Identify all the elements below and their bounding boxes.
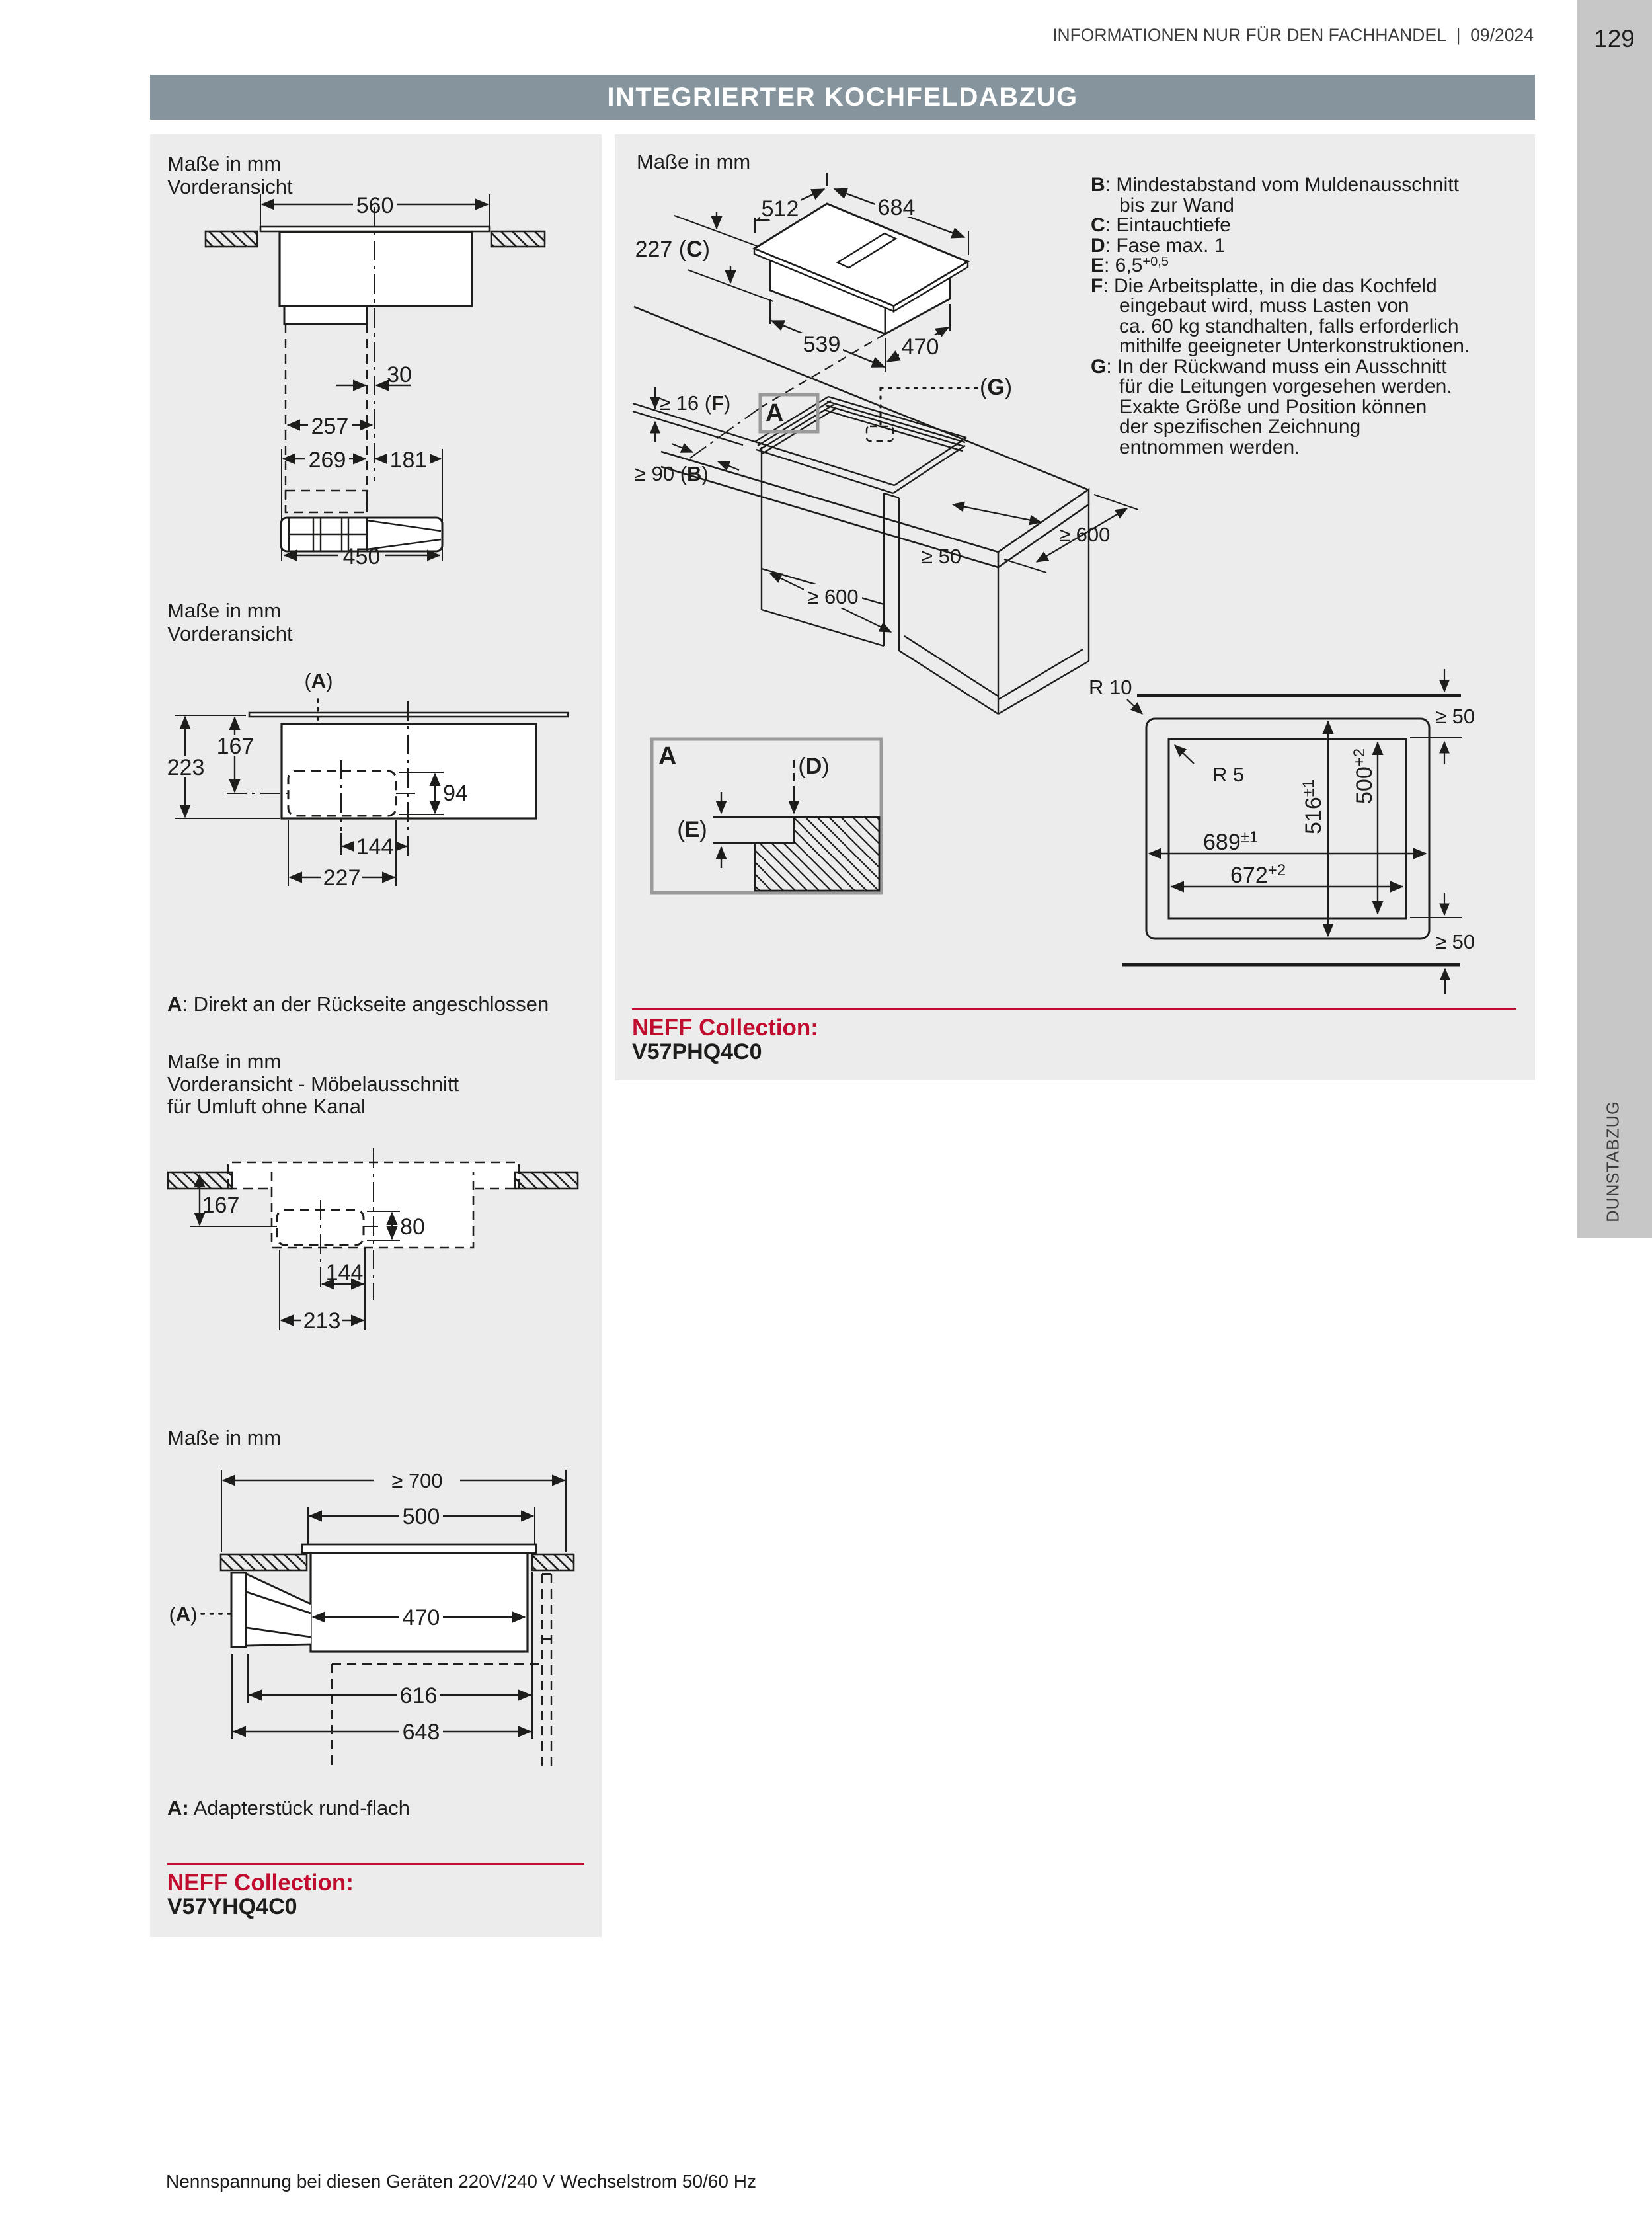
svg-text:223: 223 [167,755,205,780]
svg-text:500+2: 500+2 [1351,748,1377,804]
svg-text:≥ 50: ≥ 50 [1435,705,1475,728]
svg-text:144: 144 [356,834,394,859]
svg-text:616: 616 [400,1683,438,1708]
svg-text:450: 450 [343,544,381,569]
svg-text:(D): (D) [798,754,829,779]
svg-text:94: 94 [443,781,468,806]
svg-text:672+2: 672+2 [1230,861,1286,888]
svg-text:R 10: R 10 [1089,676,1132,699]
svg-text:470: 470 [902,335,939,360]
svg-text:≥ 600: ≥ 600 [807,585,858,608]
svg-text:167: 167 [202,1193,240,1218]
svg-text:684: 684 [878,195,916,220]
svg-text:(A): (A) [304,669,333,692]
svg-text:512: 512 [762,196,799,221]
svg-text:470: 470 [403,1605,440,1630]
svg-text:≥ 600: ≥ 600 [1059,523,1110,546]
svg-text:80: 80 [400,1215,425,1240]
svg-text:≥ 50: ≥ 50 [922,545,961,568]
svg-text:(A): (A) [169,1603,197,1626]
svg-text:539: 539 [803,332,841,357]
svg-text:144: 144 [326,1260,364,1285]
svg-text:≥ 50: ≥ 50 [1435,930,1475,953]
svg-text:≥ 90 (B): ≥ 90 (B) [635,462,709,485]
svg-text:500: 500 [403,1504,440,1529]
svg-text:516±1: 516±1 [1300,779,1326,834]
svg-text:30: 30 [387,362,412,387]
svg-text:(E): (E) [677,817,707,842]
svg-text:A: A [658,742,676,770]
svg-text:227 (C): 227 (C) [635,237,710,262]
svg-text:(G): (G) [980,375,1012,400]
svg-text:A: A [766,399,783,427]
svg-text:≥ 16 (F): ≥ 16 (F) [659,391,730,415]
svg-text:227: 227 [323,865,361,891]
svg-text:648: 648 [403,1720,440,1745]
svg-text:257: 257 [311,414,349,439]
svg-text:269: 269 [309,448,346,473]
svg-text:213: 213 [303,1308,341,1334]
svg-text:≥ 700: ≥ 700 [391,1469,442,1492]
svg-text:167: 167 [217,734,255,759]
svg-text:R 5: R 5 [1212,763,1244,786]
svg-text:181: 181 [390,448,428,473]
svg-text:689±1: 689±1 [1203,828,1258,855]
